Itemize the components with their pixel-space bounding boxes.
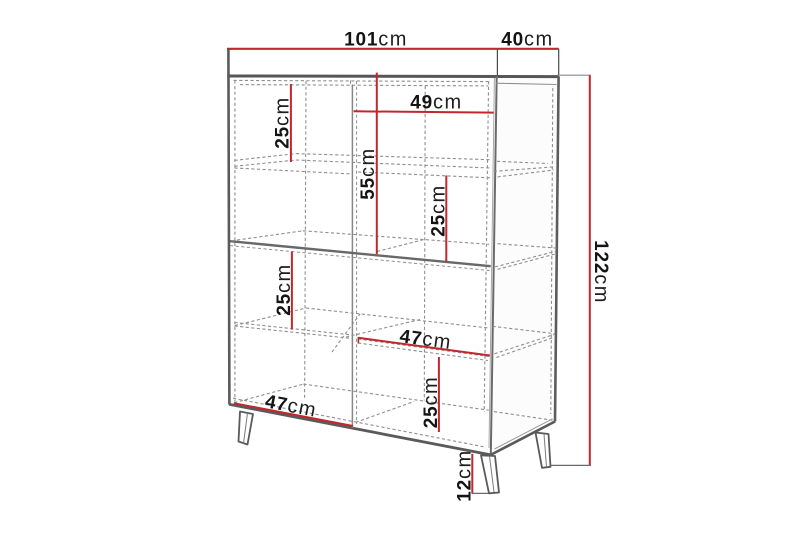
svg-text:40cm: 40cm <box>501 29 553 51</box>
svg-text:25cm: 25cm <box>420 376 442 428</box>
svg-text:25cm: 25cm <box>273 263 295 315</box>
svg-text:25cm: 25cm <box>271 96 293 148</box>
svg-text:25cm: 25cm <box>428 184 450 236</box>
svg-text:101cm: 101cm <box>344 29 408 51</box>
svg-text:49cm: 49cm <box>410 92 462 114</box>
svg-text:55cm: 55cm <box>357 147 379 199</box>
svg-text:12cm: 12cm <box>453 449 475 501</box>
svg-text:122cm: 122cm <box>590 240 612 304</box>
